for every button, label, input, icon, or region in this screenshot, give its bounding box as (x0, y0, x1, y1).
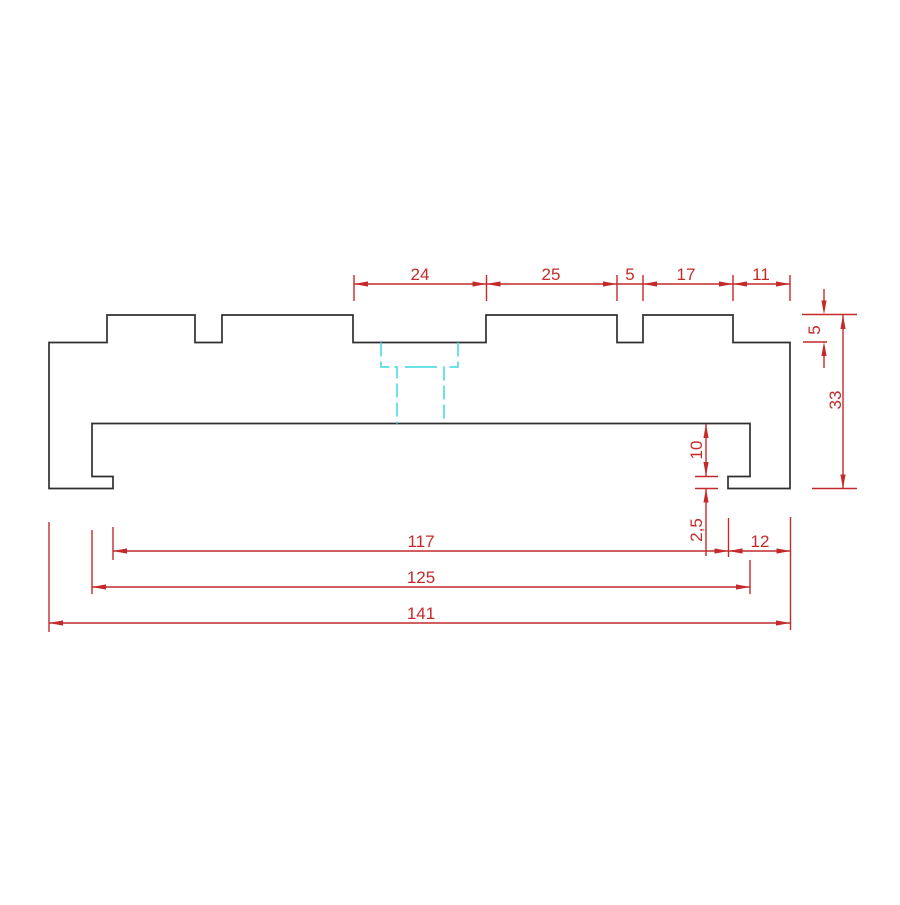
arrowhead (729, 548, 743, 553)
dim-label-24: 24 (411, 265, 430, 284)
dim-inner-web-step: 10 (687, 424, 718, 489)
dim-foot-12: 12 (729, 517, 791, 630)
arrowhead (49, 620, 63, 625)
part-outline (49, 315, 790, 489)
arrowhead (92, 584, 106, 589)
arrowhead (776, 620, 790, 625)
arrowhead (736, 584, 750, 589)
dim-bottom-117: 117 (113, 518, 729, 560)
dim-label-117: 117 (407, 532, 434, 551)
arrowhead (487, 281, 501, 286)
part-cross-section (49, 315, 790, 489)
arrowhead (719, 281, 733, 286)
arrowhead (354, 281, 368, 286)
dim-label-12: 12 (751, 532, 770, 551)
arrowhead (473, 281, 487, 286)
arrowhead (821, 342, 826, 356)
dim-right-notch-depth: 5 (802, 289, 857, 368)
drawing-canvas: 24 25 5 17 11 5 33 (0, 0, 900, 900)
dim-inner-flange: 2,5 (687, 489, 709, 557)
dim-right-overall-height: 33 (812, 315, 857, 489)
arrowhead (821, 301, 826, 315)
dim-label-2-5: 2,5 (687, 518, 706, 542)
arrowhead (776, 281, 790, 286)
arrowhead (703, 462, 708, 476)
arrowhead (715, 548, 729, 553)
arrowhead (703, 424, 708, 438)
dim-label-5-top: 5 (625, 265, 634, 284)
dim-top-chain: 24 25 5 17 11 (354, 265, 790, 301)
dim-label-11: 11 (752, 265, 770, 284)
arrowhead (113, 548, 127, 553)
arrowhead (643, 281, 657, 286)
dim-label-125: 125 (407, 568, 435, 587)
dim-label-33: 33 (826, 391, 845, 410)
arrowhead (777, 548, 791, 553)
dim-label-10: 10 (687, 441, 706, 460)
dim-label-17: 17 (677, 265, 696, 284)
arrowhead (603, 281, 617, 286)
dim-label-25: 25 (542, 265, 561, 284)
arrowhead (733, 281, 747, 286)
arrowhead (703, 489, 708, 503)
dim-label-5-right: 5 (805, 325, 824, 334)
arrowhead (840, 315, 845, 329)
arrowhead (840, 475, 845, 489)
dim-label-141: 141 (407, 604, 435, 623)
technical-drawing: 24 25 5 17 11 5 33 (0, 0, 900, 900)
